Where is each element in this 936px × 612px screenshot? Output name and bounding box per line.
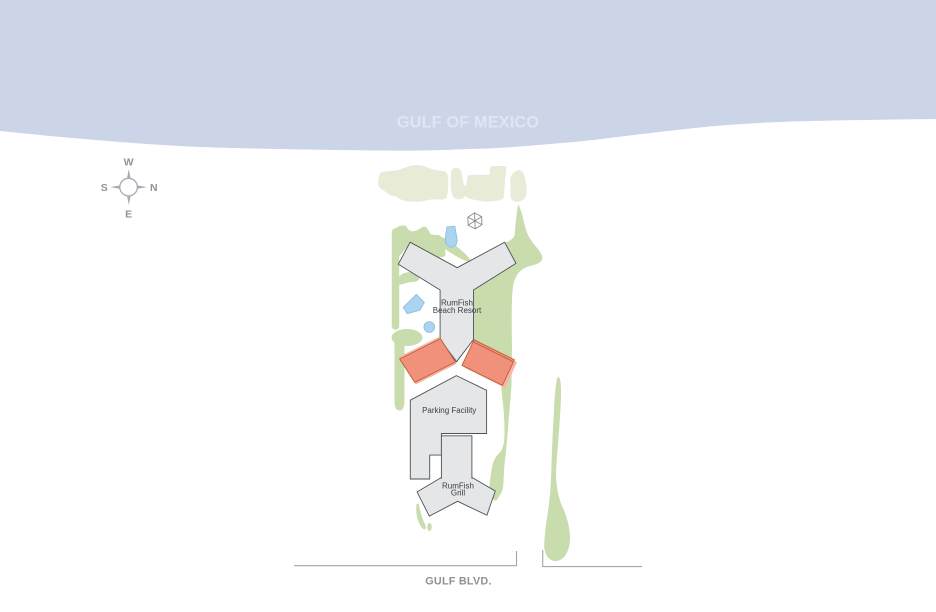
- svg-text:Parking Facility: Parking Facility: [422, 406, 476, 415]
- svg-text:GULF OF MEXICO: GULF OF MEXICO: [397, 113, 539, 131]
- svg-text:N: N: [150, 182, 158, 194]
- svg-text:E: E: [125, 208, 132, 220]
- svg-text:Beach Resort: Beach Resort: [433, 306, 482, 315]
- svg-text:GULF BLVD.: GULF BLVD.: [425, 576, 491, 588]
- svg-text:W: W: [124, 156, 134, 168]
- svg-text:S: S: [101, 182, 108, 194]
- svg-text:Grill: Grill: [451, 489, 465, 498]
